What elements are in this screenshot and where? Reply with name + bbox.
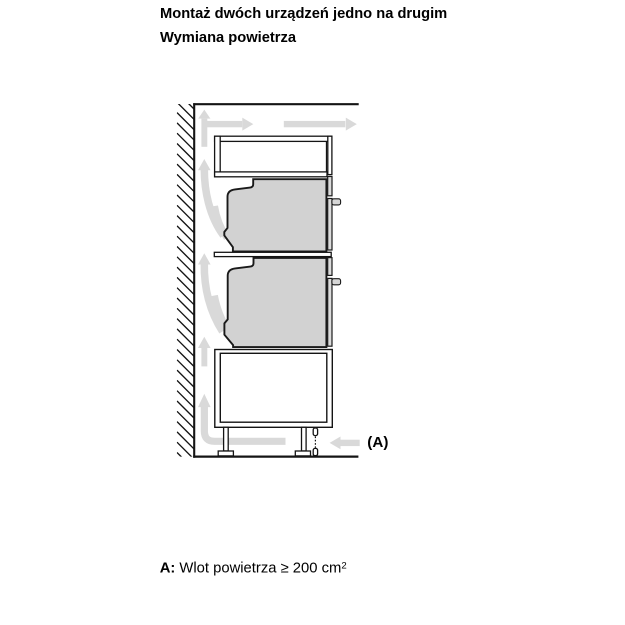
svg-text:(A): (A)	[367, 434, 388, 451]
svg-text:Montaż dwóch urządzeń jedno na: Montaż dwóch urządzeń jedno na drugim	[160, 6, 447, 22]
svg-text:A: Wlot powietrza ≥ 200 cm2: A: Wlot powietrza ≥ 200 cm2	[160, 560, 347, 576]
svg-text:Wymiana powietrza: Wymiana powietrza	[160, 30, 297, 46]
